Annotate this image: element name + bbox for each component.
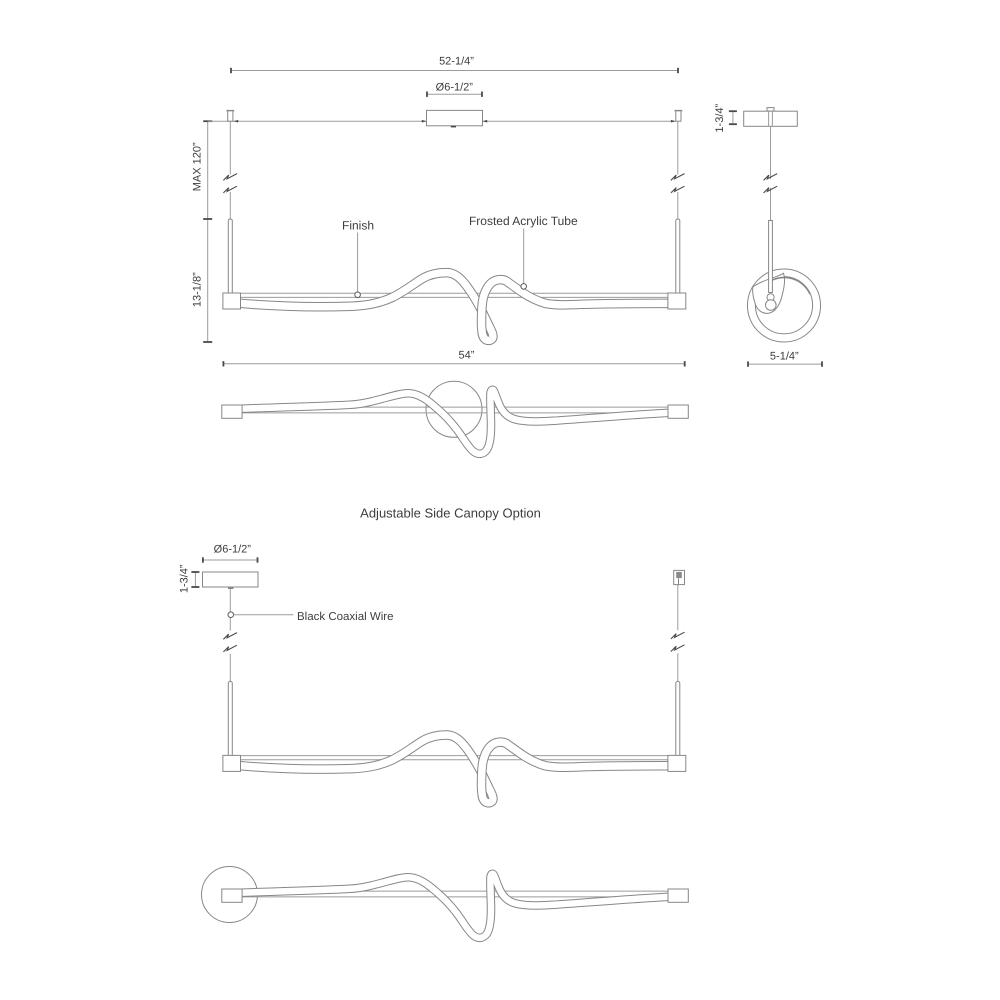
svg-text:1-3/4”: 1-3/4” bbox=[714, 104, 726, 133]
svg-text:Ø6-1/2”: Ø6-1/2” bbox=[214, 543, 252, 555]
svg-text:Finish: Finish bbox=[342, 218, 374, 232]
svg-text:Black Coaxial Wire: Black Coaxial Wire bbox=[297, 611, 394, 623]
svg-text:Adjustable Side Canopy Option: Adjustable Side Canopy Option bbox=[360, 506, 541, 521]
svg-text:MAX 120”: MAX 120” bbox=[191, 142, 203, 191]
svg-text:Frosted Acrylic Tube: Frosted Acrylic Tube bbox=[469, 214, 578, 228]
svg-text:13-1/8”: 13-1/8” bbox=[191, 272, 203, 307]
svg-text:1-3/4”: 1-3/4” bbox=[179, 564, 191, 593]
svg-text:52-1/4”: 52-1/4” bbox=[439, 55, 474, 67]
svg-text:54”: 54” bbox=[459, 350, 475, 362]
svg-text:Ø6-1/2”: Ø6-1/2” bbox=[436, 81, 474, 93]
svg-text:5-1/4”: 5-1/4” bbox=[770, 350, 799, 362]
